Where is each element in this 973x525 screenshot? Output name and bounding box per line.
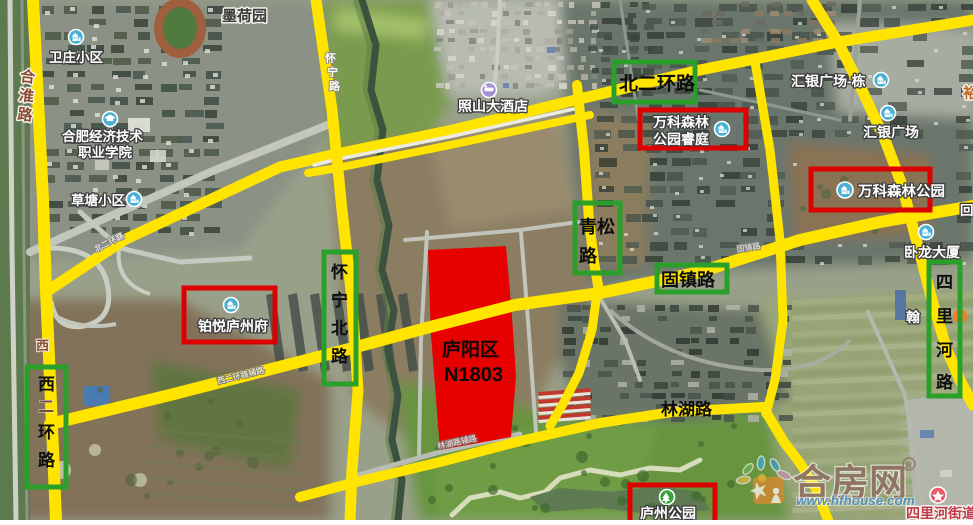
svg-text:路: 路: [936, 373, 954, 392]
svg-text:万科森林公园: 万科森林公园: [857, 183, 945, 200]
svg-text:四: 四: [936, 273, 953, 292]
svg-text:翰: 翰: [906, 309, 920, 325]
svg-text:环: 环: [38, 423, 55, 442]
svg-text:汇银广场-栋: 汇银广场-栋: [791, 73, 866, 89]
svg-text:万科森林: 万科森林: [652, 114, 710, 130]
svg-text:草塘小区: 草塘小区: [71, 193, 125, 208]
svg-text:路: 路: [579, 246, 598, 266]
svg-text:路: 路: [329, 80, 341, 93]
svg-text:庐州公园: 庐州公园: [640, 505, 696, 520]
svg-text:N1803: N1803: [444, 364, 503, 386]
svg-text:怀: 怀: [331, 263, 348, 282]
svg-text:合肥经济技术: 合肥经济技术: [62, 129, 143, 144]
svg-text:回: 回: [960, 203, 973, 218]
svg-text:墨荷园: 墨荷园: [222, 8, 267, 25]
svg-text:R: R: [906, 460, 913, 470]
svg-text:怀: 怀: [325, 52, 336, 65]
svg-text:西: 西: [36, 338, 49, 353]
svg-text:里: 里: [936, 307, 953, 326]
svg-text:林湖路: 林湖路: [661, 400, 713, 419]
svg-text:西: 西: [38, 375, 55, 394]
svg-text:青松: 青松: [579, 217, 615, 237]
svg-text:照山大酒店: 照山大酒店: [458, 98, 528, 114]
svg-text:裕: 裕: [963, 85, 973, 102]
svg-text:河: 河: [936, 341, 953, 360]
svg-text:庐阳区: 庐阳区: [442, 339, 499, 361]
svg-text:淮: 淮: [18, 87, 35, 106]
svg-text:铂悦庐州府: 铂悦庐州府: [198, 318, 268, 334]
svg-text:合: 合: [18, 67, 37, 87]
svg-text:汇银广场: 汇银广场: [863, 124, 919, 140]
svg-text:固镇路: 固镇路: [661, 270, 716, 290]
svg-text:职业学院: 职业学院: [78, 145, 132, 160]
svg-text:宁: 宁: [331, 291, 348, 310]
svg-text:二: 二: [38, 399, 54, 416]
svg-text:路: 路: [331, 347, 349, 366]
svg-text:宁: 宁: [327, 66, 338, 79]
svg-text:四里河街道: 四里河街道: [906, 505, 973, 520]
svg-text:路: 路: [38, 451, 56, 470]
svg-text:北二环路: 北二环路: [619, 73, 696, 95]
svg-text:北: 北: [331, 319, 348, 338]
svg-text:卧龙大厦: 卧龙大厦: [904, 244, 961, 260]
svg-text:www.hfhouse.com: www.hfhouse.com: [796, 493, 915, 508]
svg-text:卫庄小区: 卫庄小区: [49, 50, 103, 65]
svg-text:公园睿庭: 公园睿庭: [653, 131, 710, 147]
